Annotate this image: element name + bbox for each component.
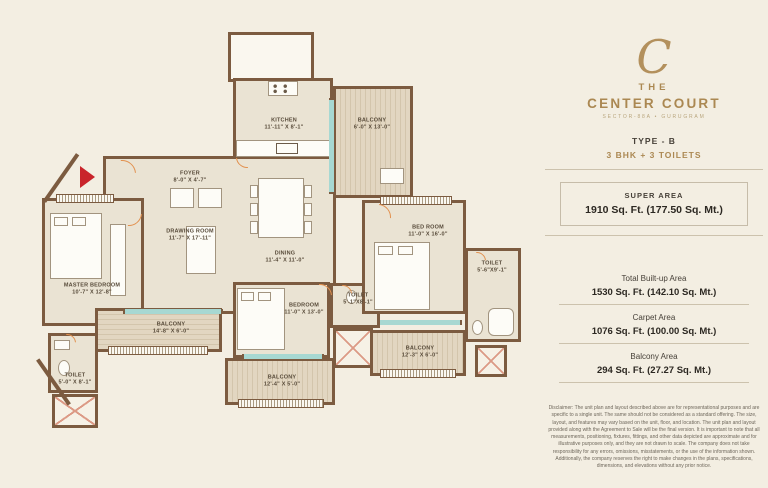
room-label-balcony-right: BALCONY 12'-3" X 6'-0" — [402, 346, 438, 361]
armchair-icon — [170, 188, 194, 208]
room-label-toilet-master: TOILET 5'-0" X 8'-1" — [58, 373, 91, 388]
area-value: 294 Sq. Ft. (27.27 Sq. Mt.) — [540, 365, 768, 376]
brand-name-line1: THE — [540, 82, 768, 93]
brand-logo-icon: C — [540, 34, 768, 80]
shaft-cross-mid — [333, 328, 373, 368]
window-hatch-bedroom — [380, 196, 452, 205]
service-duct — [228, 32, 314, 82]
area-value: 1530 Sq. Ft. (142.10 Sq. Mt.) — [540, 287, 768, 298]
window-glass-living-balcony — [123, 309, 223, 314]
super-area-label: SUPER AREA — [565, 191, 743, 200]
sink-icon — [276, 143, 298, 154]
window-hatch-balcony-right — [380, 369, 456, 378]
wc-icon — [472, 320, 483, 335]
room-label-balcony-mid: BALCONY 12'-4" X 5'-0" — [264, 375, 300, 390]
window-glass-kitchen-balcony — [329, 98, 334, 194]
divider — [559, 304, 749, 305]
window-glass-bedroom2-balcony — [242, 354, 324, 359]
divider — [559, 382, 749, 383]
divider — [545, 235, 763, 236]
window-hatch-balcony-mid — [238, 399, 324, 408]
floor-plan: KITCHEN 11'-11" X 8'-1" BALCONY 6'-0" X … — [28, 28, 536, 448]
disclaimer-text: Disclaimer: The unit plan and layout des… — [546, 405, 762, 470]
armchair-icon — [198, 188, 222, 208]
room-label-balcony-top: BALCONY 6'-0" X 13'-0" — [354, 118, 390, 133]
area-value: 1076 Sq. Ft. (100.00 Sq. Mt.) — [540, 326, 768, 337]
unit-type-label: TYPE - B — [540, 136, 768, 146]
room-label-toilet-right: TOILET 5'-6"X9'-1" — [477, 261, 507, 276]
area-row-carpet: Carpet Area 1076 Sq. Ft. (100.00 Sq. Mt.… — [540, 313, 768, 344]
stove-icon — [268, 81, 298, 96]
unit-config-label: 3 BHK + 3 TOILETS — [540, 150, 768, 160]
info-panel: C THE CENTER COURT SECTOR-88A • GURUGRAM… — [540, 0, 768, 488]
shaft-cross-bottom-left — [52, 394, 98, 428]
room-label-dining: DINING 11'-4" X 11'-0" — [266, 251, 305, 266]
room-label-bed-room: BED ROOM 11'-0" X 16'-0" — [408, 225, 447, 240]
room-label-kitchen: KITCHEN 11'-11" X 8'-1" — [265, 118, 304, 133]
shaft-cross-right — [475, 345, 507, 377]
window-hatch-master — [56, 194, 114, 203]
bed-icon-bedroom — [374, 242, 430, 310]
entry-arrow-icon — [80, 166, 95, 188]
area-row-balcony: Balcony Area 294 Sq. Ft. (27.27 Sq. Mt.) — [540, 352, 768, 383]
room-label-toilet-mid: TOILET 5'-1"X8'-1" — [343, 293, 373, 308]
brand-location: SECTOR-88A • GURUGRAM — [540, 114, 768, 120]
super-area-box: SUPER AREA 1910 Sq. Ft. (177.50 Sq. Mt.) — [560, 182, 748, 226]
super-area-value: 1910 Sq. Ft. (177.50 Sq. Mt.) — [565, 204, 743, 216]
area-label: Balcony Area — [540, 352, 768, 361]
divider — [545, 169, 763, 170]
room-label-foyer: FOYER 8'-0" X 4'-7" — [173, 171, 206, 186]
divider — [559, 343, 749, 344]
bed-icon-master — [50, 213, 102, 279]
area-row-builtup: Total Built-up Area 1530 Sq. Ft. (142.10… — [540, 274, 768, 305]
window-hatch-balcony-left — [108, 346, 208, 355]
dining-table-icon — [258, 178, 304, 238]
bathtub-icon — [488, 308, 514, 336]
brand-name-line2: CENTER COURT — [540, 96, 768, 111]
bed-icon-bedroom-2 — [237, 288, 285, 350]
area-breakdown: Total Built-up Area 1530 Sq. Ft. (142.10… — [540, 274, 768, 383]
room-label-balcony-left: BALCONY 14'-8" X 6'-0" — [153, 322, 189, 337]
room-label-bedroom-2: BEDROOM 11'-0" X 13'-0" — [284, 303, 323, 318]
window-glass-bedroom-balcony — [378, 320, 462, 325]
area-label: Total Built-up Area — [540, 274, 768, 283]
ac-unit-icon — [380, 168, 404, 184]
room-label-drawing-room: DRAWING ROOM 11'-7" X 17'-11" — [166, 229, 214, 244]
area-label: Carpet Area — [540, 313, 768, 322]
room-label-master-bedroom: MASTER BEDROOM 10'-7" X 12'-8" — [64, 283, 120, 298]
